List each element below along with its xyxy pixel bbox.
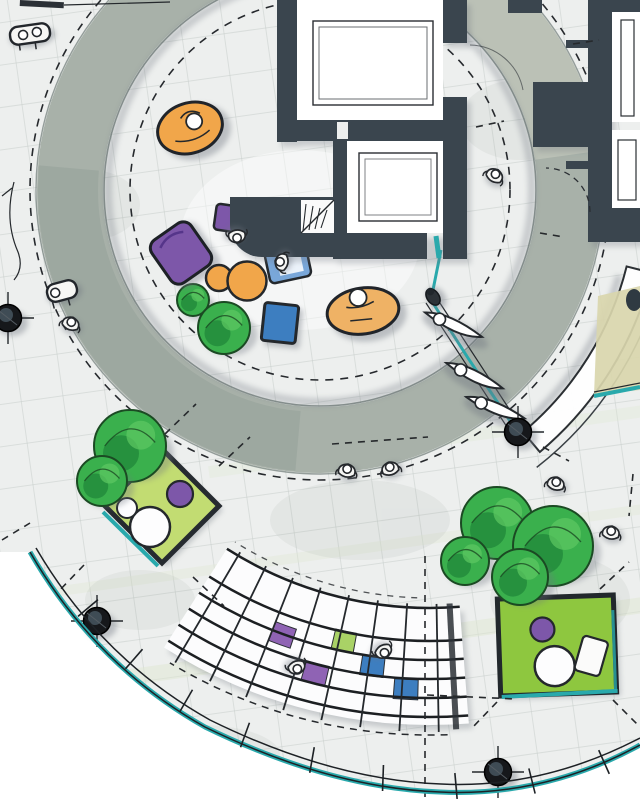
wall bbox=[443, 233, 467, 259]
tree-canopy-light bbox=[191, 289, 204, 302]
wall bbox=[333, 233, 427, 259]
round-table bbox=[534, 645, 575, 686]
wall bbox=[443, 0, 467, 43]
tree-canopy-light bbox=[549, 518, 581, 550]
wall bbox=[588, 0, 612, 215]
purple-chair bbox=[167, 481, 193, 507]
door-gap bbox=[337, 122, 348, 139]
bench-leg bbox=[35, 42, 36, 49]
bench-leg bbox=[19, 45, 20, 51]
blue-ottoman bbox=[261, 302, 304, 349]
tree-canopy-light bbox=[463, 544, 482, 563]
planter-right bbox=[497, 595, 620, 700]
facade-tick bbox=[383, 765, 384, 791]
wall-stub bbox=[566, 161, 612, 169]
tree-canopy-light bbox=[126, 421, 155, 450]
room-interior bbox=[347, 140, 447, 233]
orange-table bbox=[228, 262, 267, 301]
tree-canopy-light bbox=[100, 464, 120, 484]
person-head bbox=[18, 30, 28, 40]
sketch-element bbox=[270, 480, 450, 560]
wall bbox=[277, 120, 467, 141]
tree-canopy-light bbox=[517, 557, 539, 579]
wall bbox=[533, 82, 592, 147]
person-head bbox=[275, 257, 285, 267]
wall bbox=[508, 0, 542, 13]
stairs bbox=[301, 200, 334, 233]
wall-stub bbox=[566, 95, 612, 103]
khaki-terrace bbox=[594, 286, 640, 396]
teal-glass-door bbox=[436, 236, 439, 258]
purple-chair bbox=[530, 617, 555, 642]
room-interior bbox=[612, 12, 640, 122]
floor-plan-canvas bbox=[0, 0, 640, 800]
tree-canopy-light bbox=[221, 310, 242, 331]
person-head bbox=[606, 526, 616, 536]
person-head bbox=[342, 464, 352, 474]
person-head bbox=[32, 27, 42, 37]
tree-canopy-light bbox=[493, 498, 522, 527]
wall bbox=[588, 208, 640, 242]
person-head bbox=[233, 233, 242, 242]
floor-plan-drawing bbox=[0, 0, 640, 800]
sketch-element bbox=[261, 302, 299, 343]
